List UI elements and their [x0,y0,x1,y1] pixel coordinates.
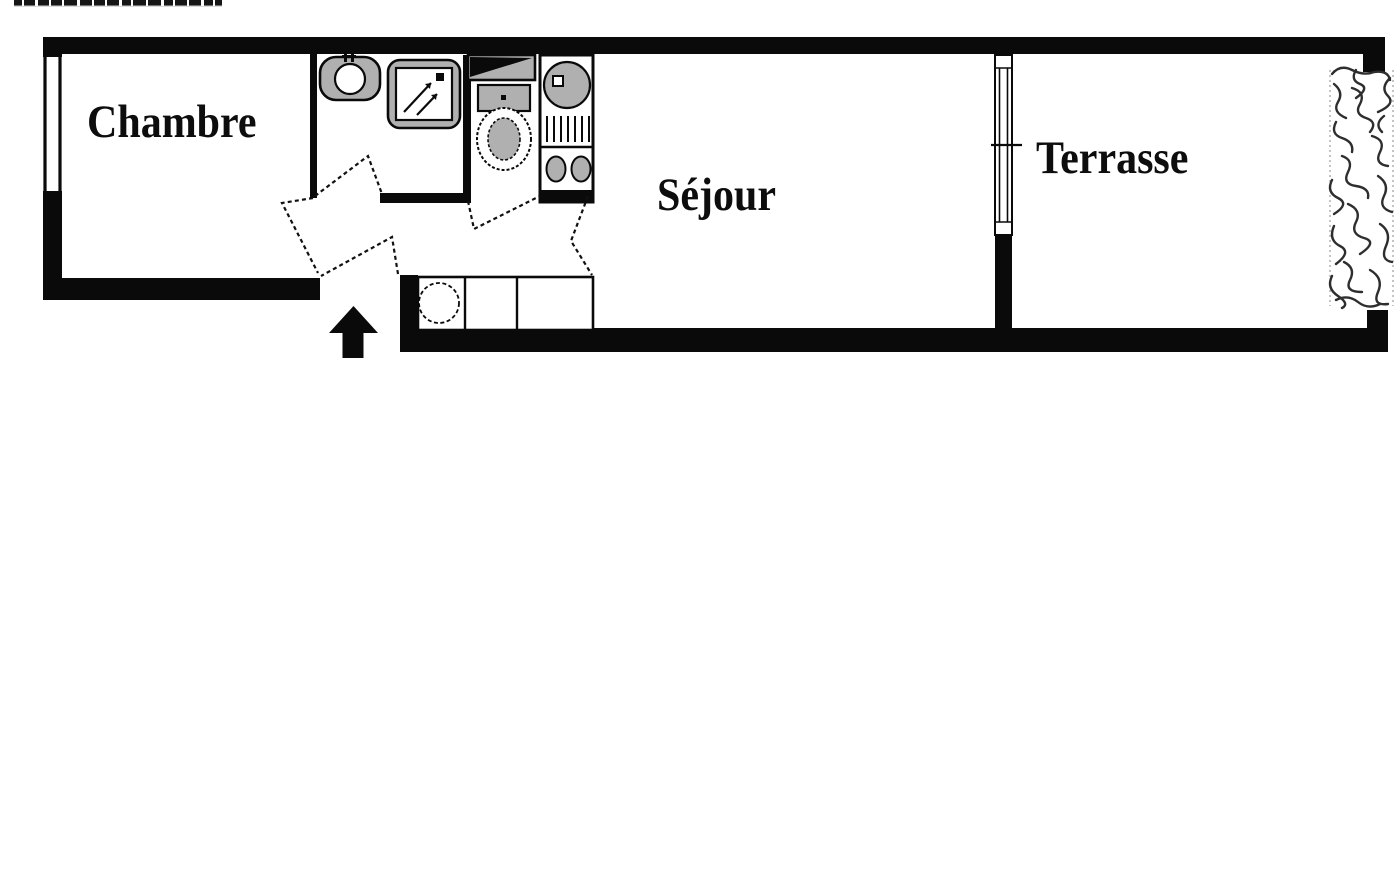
chambre-door-swing [282,198,318,273]
hedge-icon [1330,68,1393,308]
floor-plan: Chambre Séjour Terrasse [0,0,1400,870]
sejour-label: Séjour [657,172,776,219]
bathroom-south-wall [380,193,468,203]
kitchenette-icon [540,55,593,202]
top-right-corner [1363,53,1385,72]
shower-icon [388,60,460,128]
kitchenette-sink [544,62,590,108]
kitchen-door-swing [571,196,592,275]
bottom-wall-main [400,328,1388,352]
window-terrasse [991,55,1022,235]
chambre-partition-wall [310,53,317,198]
top-wall [43,37,1385,54]
entrance-door-swing [321,237,398,276]
left-wall-upper [43,37,62,55]
scan-artifact [14,0,222,7]
washbasin-icon [320,51,380,100]
bathroom-door-swing [315,156,382,196]
bottom-right-corner [1367,310,1388,330]
shelf-unit-icon [468,55,535,80]
counter-with-sink [418,277,593,330]
sejour-terrasse-wall [995,235,1012,330]
terrasse-label: Terrasse [1036,135,1188,182]
kitchenette-drainer [547,116,589,142]
entrance-arrow-icon [329,306,378,358]
chambre-label: Chambre [87,99,257,146]
toilet-icon [477,85,531,170]
chambre-bottom-wall [43,278,320,300]
kitchenette-burner [572,157,591,182]
kitchenette-burner [547,157,566,182]
window-chambre [43,55,62,193]
wc-door-swing [468,196,540,229]
